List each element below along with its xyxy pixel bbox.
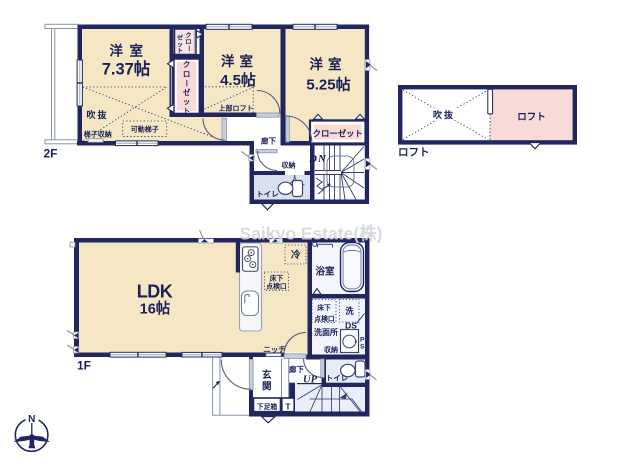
svg-text:浴室: 浴室 <box>315 266 335 278</box>
svg-text:ゼ: ゼ <box>183 88 191 97</box>
svg-text:床下: 床下 <box>270 273 284 282</box>
svg-text:収納: 収納 <box>282 161 296 170</box>
svg-text:トイレ: トイレ <box>256 190 279 199</box>
svg-text:関: 関 <box>262 382 272 393</box>
svg-text:16帖: 16帖 <box>140 300 171 318</box>
svg-text:ッ: ッ <box>183 97 190 106</box>
svg-text:吹抜: 吹抜 <box>86 109 108 120</box>
svg-text:7.37帖: 7.37帖 <box>102 59 151 79</box>
svg-text:収納: 収納 <box>324 345 338 354</box>
svg-text:トイレ: トイレ <box>326 373 349 382</box>
svg-text:T: T <box>286 402 291 411</box>
svg-text:廊下: 廊下 <box>289 364 304 374</box>
svg-text:洋室: 洋室 <box>110 43 150 59</box>
svg-text:吹抜: 吹抜 <box>433 109 455 120</box>
svg-text:ロフト: ロフト <box>398 147 430 159</box>
svg-text:S: S <box>360 343 365 350</box>
svg-text:LDK: LDK <box>137 282 173 302</box>
svg-text:上部ロフト: 上部ロフト <box>219 103 254 112</box>
svg-text:洗面所: 洗面所 <box>314 327 338 337</box>
svg-text:点検口: 点検口 <box>266 282 287 291</box>
svg-text:洋室: 洋室 <box>310 56 347 72</box>
svg-text:ロフト: ロフト <box>517 112 546 123</box>
svg-text:可動梯子: 可動梯子 <box>131 125 159 134</box>
svg-text:P: P <box>360 336 365 343</box>
svg-text:床下: 床下 <box>317 303 331 312</box>
svg-text:ー: ー <box>185 45 192 51</box>
svg-text:Saikyo Estate(株): Saikyo Estate(株) <box>240 224 383 244</box>
svg-text:DN: DN <box>308 153 327 165</box>
svg-text:UP: UP <box>303 375 318 386</box>
svg-text:梯子収納: 梯子収納 <box>84 130 112 139</box>
svg-text:廊下: 廊下 <box>261 136 276 146</box>
svg-text:玄: 玄 <box>262 369 272 381</box>
svg-text:冷: 冷 <box>291 249 301 261</box>
svg-text:クローゼット: クローゼット <box>313 129 363 139</box>
svg-text:洋室: 洋室 <box>221 53 258 69</box>
svg-text:ー: ー <box>182 79 191 86</box>
svg-text:2F: 2F <box>44 147 58 161</box>
svg-text:点検口: 点検口 <box>314 314 335 323</box>
svg-text:洗: 洗 <box>345 306 354 316</box>
svg-text:ト: ト <box>183 107 190 116</box>
svg-text:ニッチ: ニッチ <box>263 345 286 354</box>
svg-text:4.5帖: 4.5帖 <box>220 71 256 89</box>
svg-text:5.25帖: 5.25帖 <box>306 76 350 94</box>
svg-text:下足箱: 下足箱 <box>257 402 278 411</box>
svg-text:1F: 1F <box>77 359 91 373</box>
svg-text:ト: ト <box>177 48 183 55</box>
svg-text:ロ: ロ <box>183 69 190 78</box>
svg-text:ク: ク <box>183 60 190 69</box>
